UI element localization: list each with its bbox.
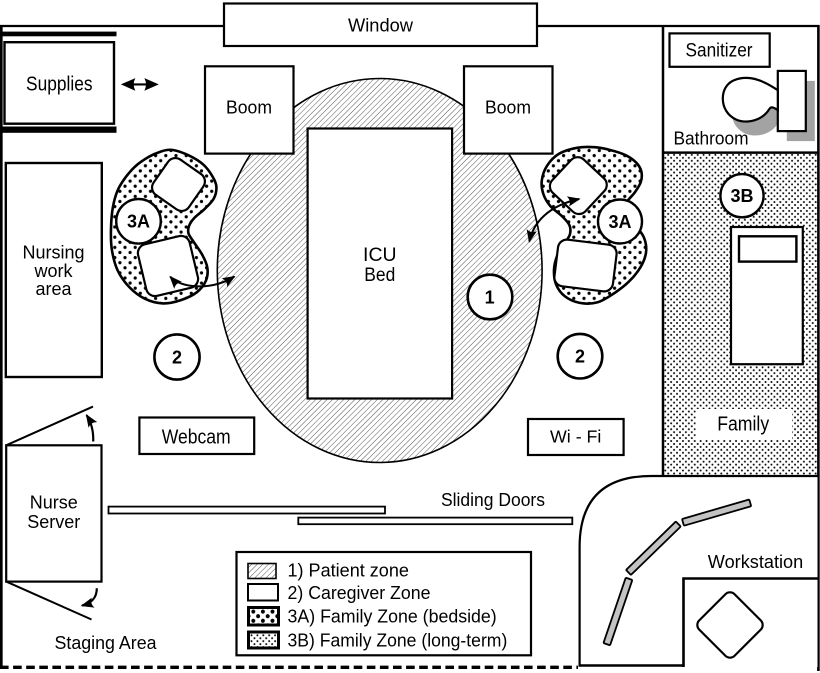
svg-text:3A) Family Zone (bedside): 3A) Family Zone (bedside) (288, 606, 497, 627)
svg-text:Bed: Bed (364, 264, 395, 286)
svg-text:3A: 3A (608, 212, 631, 232)
svg-text:1: 1 (485, 287, 495, 307)
svg-text:Family: Family (717, 414, 769, 436)
svg-text:Nursing: Nursing (22, 242, 84, 262)
svg-text:Supplies: Supplies (26, 74, 93, 96)
svg-text:Wi - Fi: Wi - Fi (550, 426, 601, 446)
svg-text:2: 2 (575, 347, 585, 367)
svg-text:Boom: Boom (226, 98, 272, 118)
svg-text:3B) Family Zone (long-term): 3B) Family Zone (long-term) (288, 630, 508, 651)
svg-text:Window: Window (348, 15, 414, 36)
svg-text:2) Caregiver Zone: 2) Caregiver Zone (288, 582, 431, 603)
svg-text:ICU: ICU (363, 244, 397, 266)
svg-text:2: 2 (172, 347, 182, 367)
svg-text:work: work (33, 261, 73, 281)
svg-text:3B: 3B (730, 186, 753, 206)
svg-text:Sanitizer: Sanitizer (686, 41, 754, 62)
svg-text:area: area (35, 279, 72, 299)
svg-text:Staging Area: Staging Area (55, 633, 158, 653)
svg-text:Webcam: Webcam (162, 426, 231, 449)
svg-text:Server: Server (27, 512, 80, 532)
svg-text:1) Patient zone: 1) Patient zone (288, 560, 409, 581)
svg-text:Workstation: Workstation (708, 552, 803, 572)
svg-text:Nurse: Nurse (30, 492, 78, 512)
svg-text:3A: 3A (127, 212, 150, 232)
svg-text:Sliding Doors: Sliding Doors (441, 490, 545, 510)
svg-text:Boom: Boom (485, 98, 531, 118)
svg-text:Bathroom: Bathroom (674, 127, 749, 148)
